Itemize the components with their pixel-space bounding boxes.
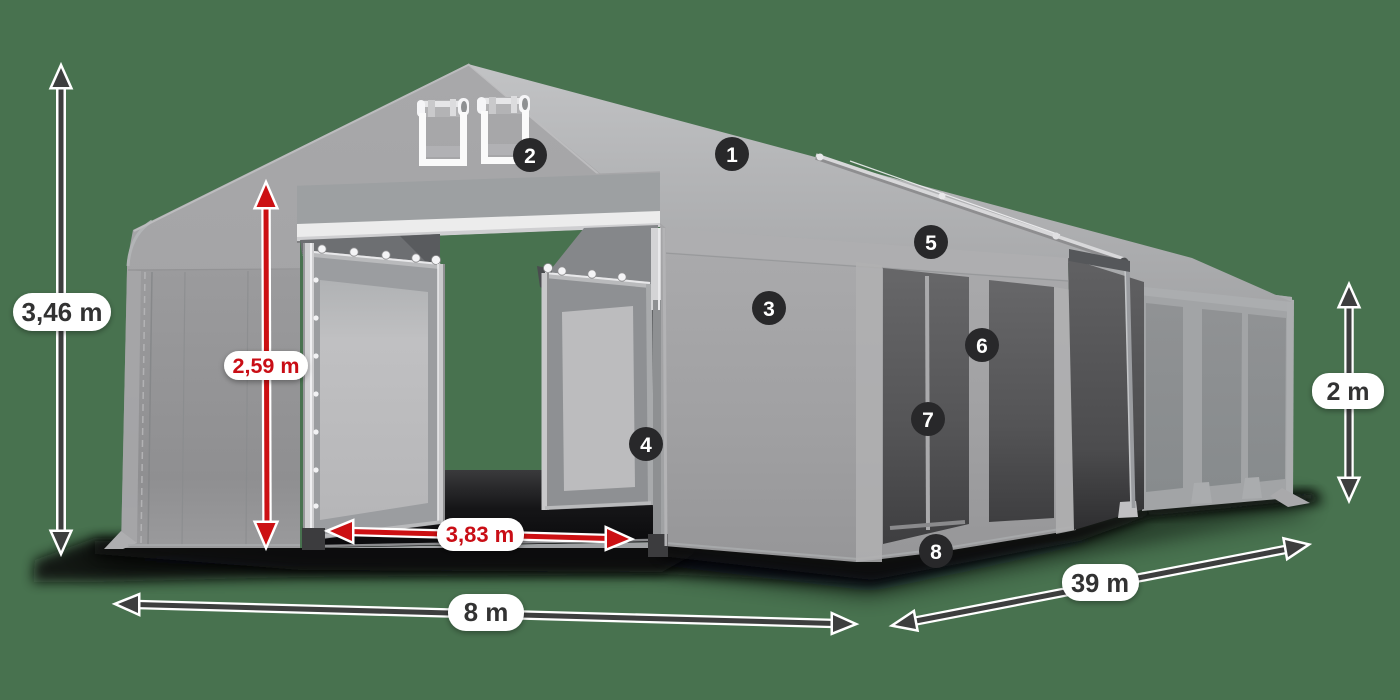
svg-text:2,59 m: 2,59 m (233, 354, 300, 378)
svg-text:5: 5 (925, 232, 937, 255)
svg-text:8 m: 8 m (464, 597, 509, 627)
svg-text:3,83 m: 3,83 m (446, 522, 515, 547)
svg-text:2: 2 (524, 145, 536, 168)
svg-text:4: 4 (640, 434, 652, 457)
svg-text:3: 3 (763, 298, 775, 321)
svg-text:3,46 m: 3,46 m (22, 297, 103, 327)
svg-text:2 m: 2 m (1326, 378, 1369, 406)
svg-text:8: 8 (930, 541, 942, 564)
svg-text:7: 7 (922, 409, 934, 432)
svg-text:1: 1 (726, 144, 738, 167)
svg-text:39 m: 39 m (1071, 570, 1129, 598)
svg-text:6: 6 (976, 335, 988, 358)
